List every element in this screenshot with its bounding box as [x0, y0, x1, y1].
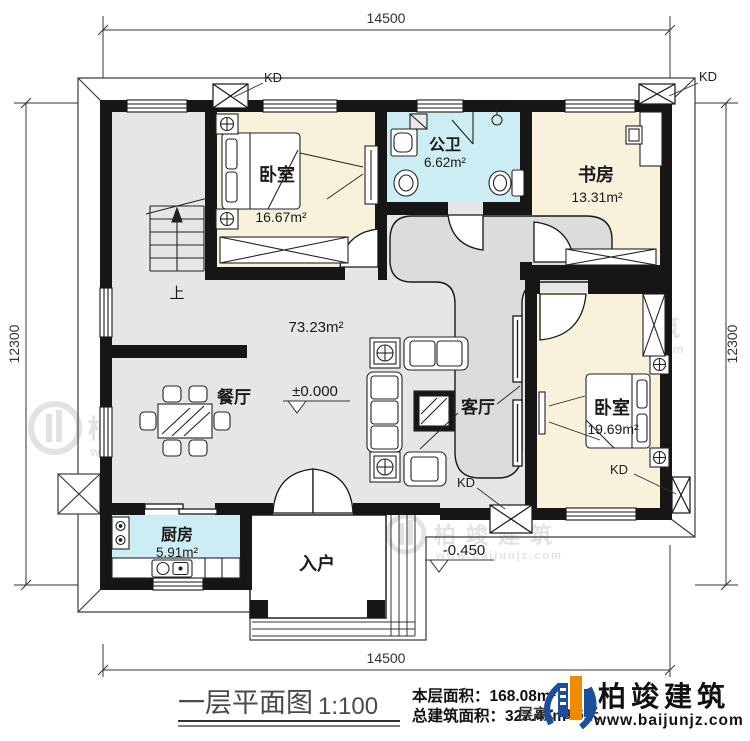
dining-chair: [163, 386, 181, 402]
floor-plan-drawing: 柏竣建筑 www.baijunjz.com 柏竣建筑 www.baijunjz.…: [0, 0, 750, 741]
dining-chair: [189, 440, 207, 456]
dining-table: [158, 404, 212, 438]
kd-label: KD: [264, 70, 282, 85]
dresser: [365, 146, 378, 204]
kd-box-top-left: [213, 84, 248, 108]
tv-panel: [539, 392, 545, 434]
plan-title: 一层平面图: [178, 688, 313, 718]
floor-plan-sheet: 柏竣建筑 www.baijunjz.com 柏竣建筑 www.baijunjz.…: [0, 0, 750, 741]
washing-machine: [391, 129, 417, 156]
computer: [626, 126, 642, 144]
floor-area-text: 本层面积：168.08m²: [412, 686, 556, 705]
dining-chair: [214, 412, 230, 430]
nightstand: [650, 355, 669, 374]
hall-area-label: 73.23m²: [288, 319, 343, 336]
bathroom-sink: [394, 170, 418, 196]
coffee-table: [414, 391, 454, 431]
plan-scale: 1:100: [318, 693, 378, 720]
window-top-bathroom: [417, 100, 463, 112]
sofa-single: [404, 452, 446, 486]
room-label-bathroom: 公卫: [429, 136, 461, 154]
kd-label: KD: [457, 475, 475, 490]
level-main-label: ±0.000: [292, 383, 338, 400]
room-label-bedroom1: 卧室: [259, 164, 295, 185]
room-area-study: 13.31m²: [571, 189, 623, 205]
wardrobe: [643, 294, 665, 356]
dining-chair: [189, 386, 207, 402]
dim-top: 14500: [367, 10, 406, 26]
nightstand: [216, 114, 238, 134]
desk: [640, 112, 662, 166]
dim-left: 12300: [6, 324, 22, 363]
window-top-stair: [127, 100, 187, 112]
kd-box-top-right: [639, 84, 675, 104]
stair-up-label: 上: [169, 285, 184, 302]
sofa-two-seat: [404, 337, 468, 370]
dim-bottom: 14500: [367, 650, 406, 666]
dining-chair: [163, 440, 181, 456]
room-area-kitchen: 5.91m²: [156, 545, 199, 560]
window-left-upper: [100, 288, 112, 337]
room-area-bathroom: 6.62m²: [424, 155, 467, 170]
plant-pot: [370, 338, 400, 368]
wardrobe: [220, 237, 348, 263]
brand-website: www.baijunjz.com: [593, 712, 744, 729]
kd-label: KD: [699, 69, 717, 84]
dim-right: 12300: [724, 324, 740, 363]
sofa-three-seat: [367, 372, 402, 452]
kitchen-slider-leaf2: [179, 509, 217, 514]
stove: [112, 517, 129, 549]
window-top-study: [565, 100, 635, 112]
room-label-dining: 餐厅: [217, 387, 251, 407]
window-kitchen-bottom: [153, 578, 203, 590]
kitchen-sink: [152, 560, 192, 577]
wardrobe: [566, 249, 656, 265]
kd-box-right-bottom: [672, 477, 690, 513]
kd-box-living-bottom: [490, 505, 532, 533]
brand-name: 柏竣建筑: [598, 680, 730, 712]
room-label-living: 客厅: [460, 397, 495, 417]
toilet: [489, 170, 524, 196]
plant-pot: [370, 452, 400, 482]
window-left-lower: [100, 407, 112, 457]
kitchen-slider-leaf1: [145, 504, 183, 509]
room-label-bedroom2: 卧室: [594, 397, 630, 418]
window-top-bedroom1: [263, 100, 337, 112]
window-bedroom2-bottom: [566, 508, 636, 520]
dining-chair: [140, 412, 156, 430]
nightstand: [650, 448, 669, 467]
room-label-study: 书房: [578, 164, 614, 185]
nightstand: [216, 209, 238, 229]
room-label-entry: 入户: [299, 553, 335, 574]
kd-label: KD: [610, 462, 628, 477]
floor-drain: [410, 114, 427, 129]
room-label-kitchen: 厨房: [161, 525, 193, 544]
level-entry-label: -0.450: [443, 542, 486, 559]
room-area-bedroom1: 16.67m²: [255, 209, 307, 225]
room-area-bedroom2: 19.69m²: [587, 421, 639, 437]
